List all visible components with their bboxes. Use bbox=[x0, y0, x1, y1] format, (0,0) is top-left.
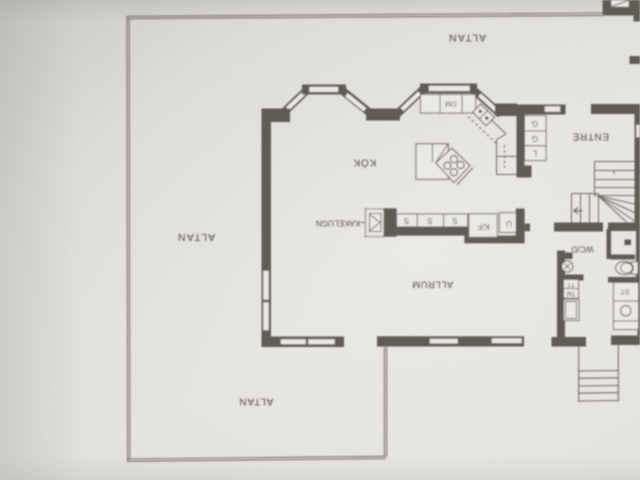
svg-text:ALTAN: ALTAN bbox=[177, 231, 215, 243]
svg-text:U: U bbox=[506, 219, 512, 228]
svg-text:KÖK: KÖK bbox=[353, 157, 377, 169]
svg-text:ENTRÉ: ENTRÉ bbox=[572, 131, 609, 144]
svg-text:ALLRUM: ALLRUM bbox=[412, 279, 454, 290]
svg-text:TM: TM bbox=[566, 290, 575, 297]
svg-text:ALTAN: ALTAN bbox=[239, 396, 274, 407]
svg-text:WC/D: WC/D bbox=[571, 244, 593, 254]
svg-text:G: G bbox=[532, 119, 538, 128]
svg-text:DM: DM bbox=[445, 100, 457, 109]
svg-text:S: S bbox=[452, 216, 457, 225]
svg-text:ST: ST bbox=[620, 287, 630, 296]
svg-text:TT: TT bbox=[567, 281, 575, 288]
svg-text:G: G bbox=[532, 134, 538, 143]
svg-text:S: S bbox=[404, 216, 409, 225]
svg-text:ALTAN: ALTAN bbox=[448, 32, 486, 44]
svg-text:S: S bbox=[427, 216, 432, 225]
svg-text:K/F: K/F bbox=[477, 222, 490, 231]
svg-text:KAKELUGN: KAKELUGN bbox=[316, 219, 360, 228]
svg-text:L: L bbox=[532, 148, 537, 157]
